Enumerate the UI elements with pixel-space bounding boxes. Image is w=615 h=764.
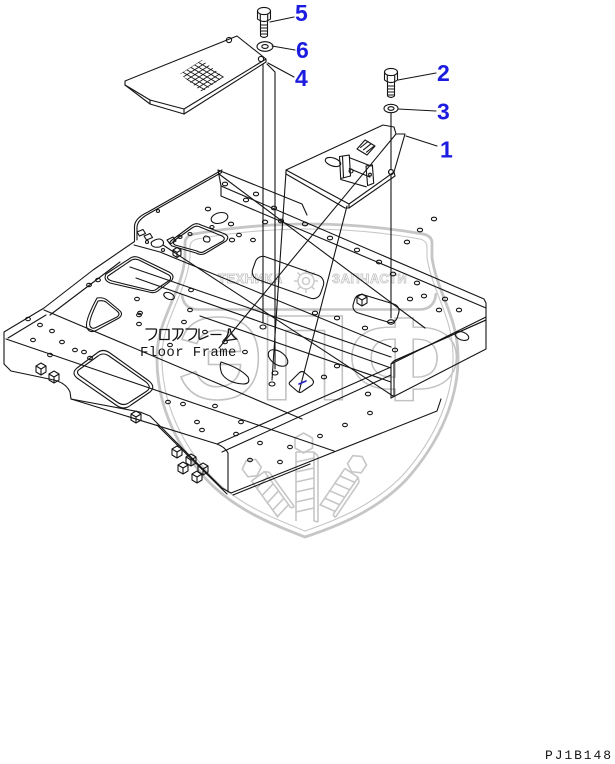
svg-text:5: 5 — [295, 0, 308, 26]
svg-text:6: 6 — [296, 37, 309, 63]
svg-text:2: 2 — [437, 60, 450, 86]
svg-text:1: 1 — [440, 137, 453, 163]
svg-text:PJ1B148: PJ1B148 — [545, 748, 613, 763]
svg-text:3: 3 — [437, 99, 450, 125]
svg-text:4: 4 — [295, 65, 308, 91]
svg-text:ТЕХНИКА: ТЕХНИКА — [218, 271, 283, 286]
svg-text:Floor Frame: Floor Frame — [140, 345, 237, 361]
